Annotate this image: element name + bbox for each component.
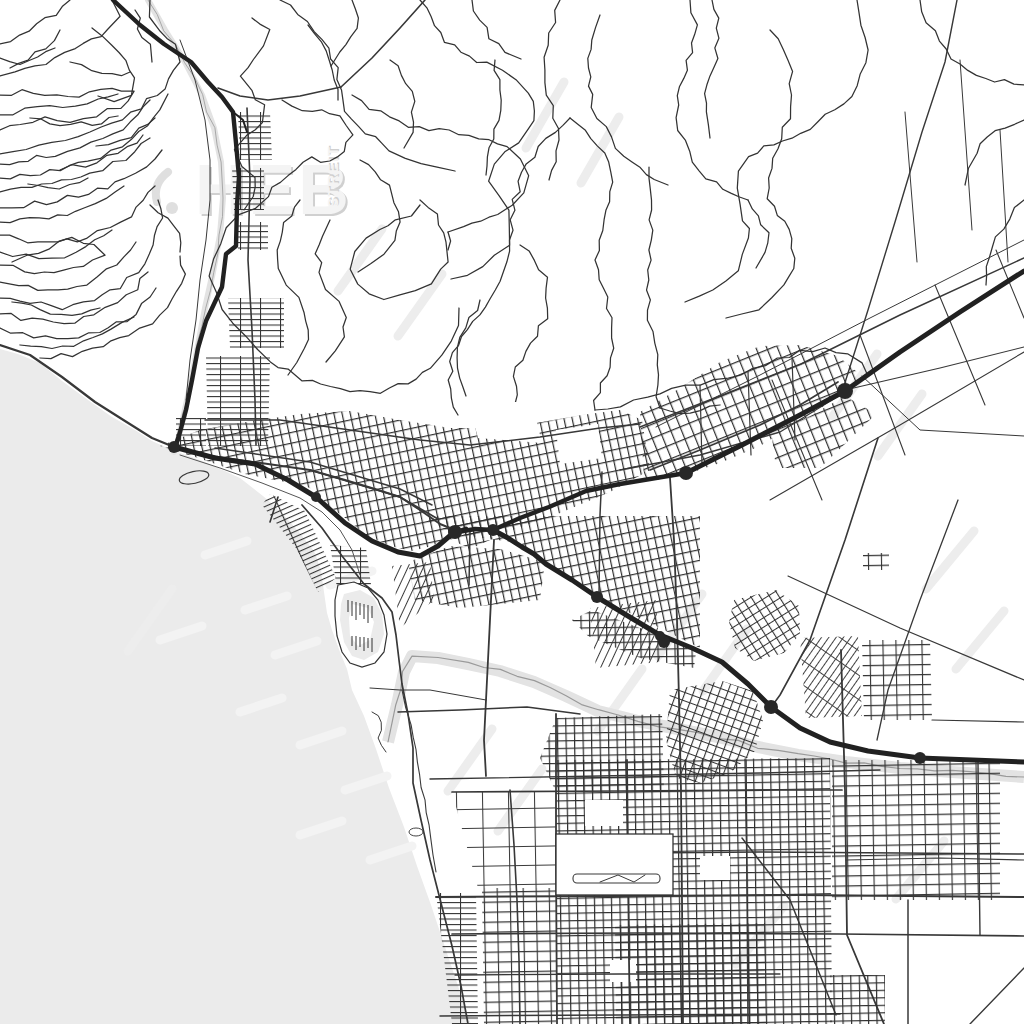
svg-text:STREIT: STREIT: [324, 146, 341, 208]
